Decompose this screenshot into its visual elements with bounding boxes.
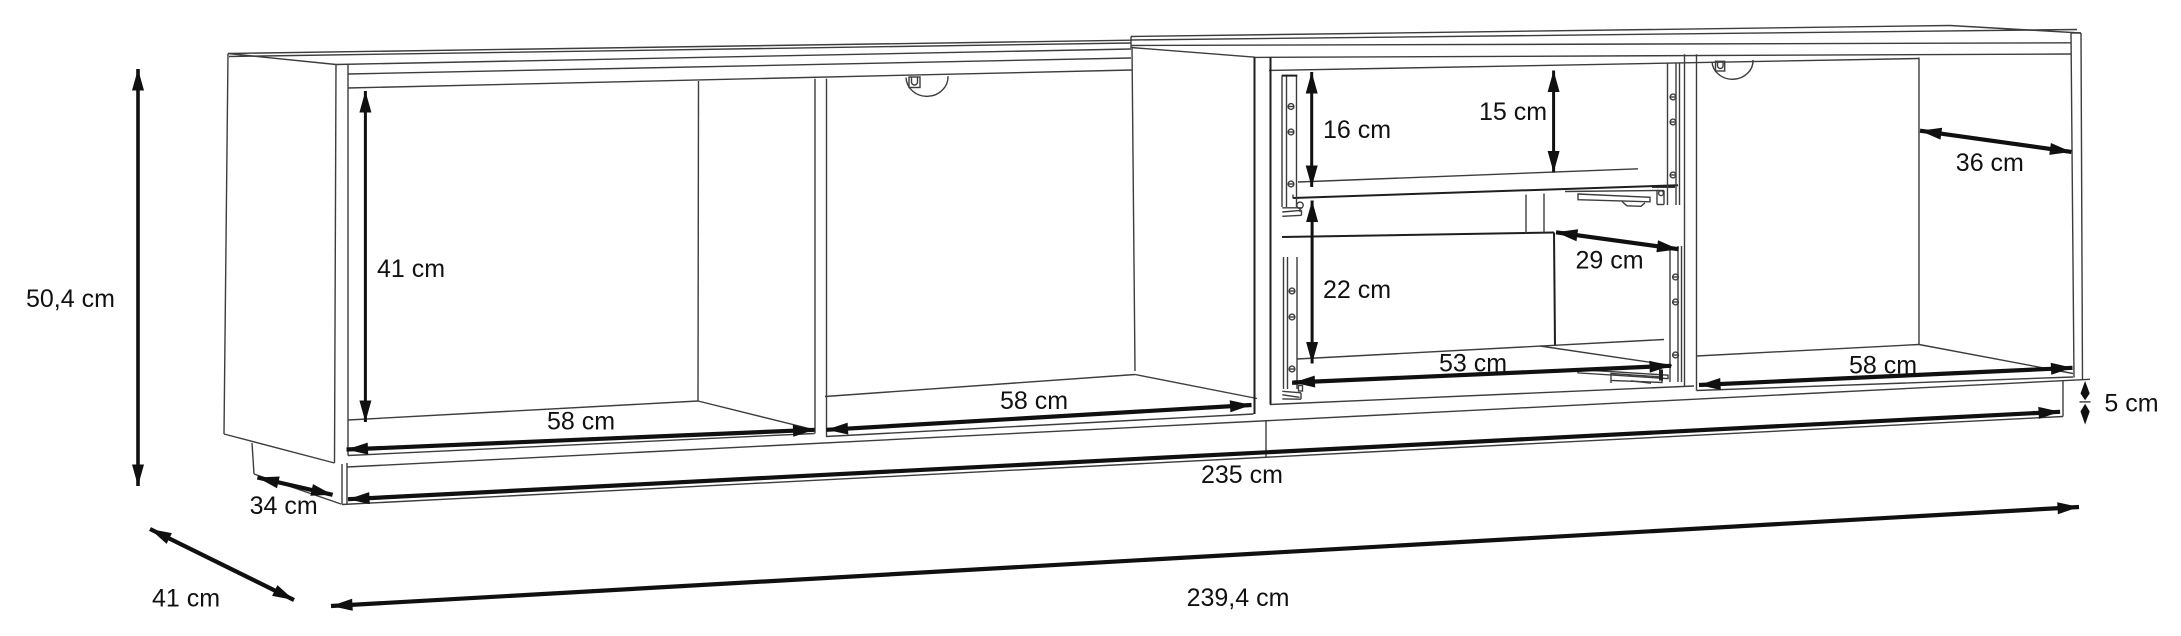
svg-text:22 cm: 22 cm: [1323, 276, 1391, 304]
svg-text:34 cm: 34 cm: [250, 492, 318, 520]
svg-text:53 cm: 53 cm: [1439, 350, 1507, 378]
svg-text:16 cm: 16 cm: [1323, 116, 1391, 144]
svg-text:36 cm: 36 cm: [1956, 149, 2024, 177]
svg-text:58 cm: 58 cm: [547, 408, 615, 436]
svg-text:5 cm: 5 cm: [2104, 390, 2158, 418]
svg-text:239,4 cm: 239,4 cm: [1187, 584, 1290, 612]
svg-text:235 cm: 235 cm: [1201, 461, 1283, 489]
svg-text:29 cm: 29 cm: [1576, 246, 1644, 274]
svg-text:58 cm: 58 cm: [1849, 352, 1917, 380]
svg-text:41 cm: 41 cm: [152, 585, 220, 613]
svg-text:15 cm: 15 cm: [1479, 98, 1547, 126]
svg-text:41 cm: 41 cm: [377, 255, 445, 283]
svg-text:58 cm: 58 cm: [1000, 387, 1068, 415]
svg-text:50,4 cm: 50,4 cm: [26, 285, 115, 313]
